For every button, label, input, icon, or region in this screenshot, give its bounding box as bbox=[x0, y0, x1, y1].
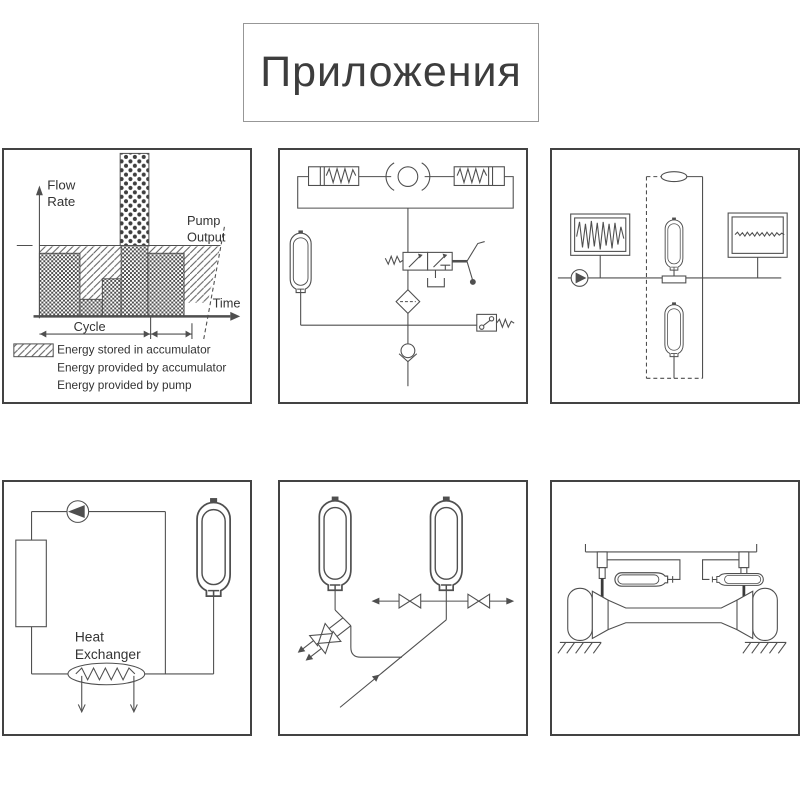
oscilloscope-noisy bbox=[571, 214, 630, 278]
valve-spring bbox=[385, 256, 403, 264]
accumulator-bank-svg bbox=[280, 482, 526, 734]
spring-cylinder-right-icon bbox=[454, 167, 504, 186]
circulation-pump-icon bbox=[67, 501, 89, 523]
panel-pulsation-damping bbox=[550, 148, 800, 404]
vehicle-frame bbox=[585, 544, 756, 552]
spring-cylinder-left-icon bbox=[309, 167, 359, 186]
horizontal-accumulator-right bbox=[712, 574, 763, 586]
distribution-line bbox=[372, 594, 515, 608]
panel-brake-circuit bbox=[278, 148, 528, 404]
time-axis-arrow bbox=[230, 312, 240, 321]
oscilloscope-smooth bbox=[728, 213, 787, 278]
legend-item-3: Energy provided by pump bbox=[57, 378, 192, 392]
axle-beam bbox=[608, 600, 737, 630]
supply-line bbox=[340, 620, 446, 708]
wheel-left bbox=[568, 588, 593, 640]
shutoff-valve-icon bbox=[468, 594, 490, 608]
pump-icon bbox=[571, 270, 588, 287]
hub-left bbox=[592, 591, 608, 638]
heat-exchanger-label-line1: Heat bbox=[75, 629, 104, 644]
directional-valve-icon bbox=[385, 242, 484, 285]
accumulator-branch-icon bbox=[665, 302, 683, 378]
wheel-right bbox=[753, 588, 778, 640]
time-label: Time bbox=[213, 295, 241, 310]
flow-arrow-branch1 bbox=[298, 646, 306, 653]
tank-icon bbox=[428, 270, 445, 287]
page: Приложения bbox=[0, 0, 800, 800]
branch-lines bbox=[298, 610, 402, 661]
panel-energy-chart: Flow Rate Pump Output Time Cycle Energy … bbox=[2, 148, 252, 404]
panel-thermal-circuit: Heat Exchanger bbox=[2, 480, 252, 736]
accumulator-icon bbox=[290, 230, 311, 325]
panel-accumulator-bank bbox=[278, 480, 528, 736]
suspension-svg bbox=[552, 482, 798, 734]
check-valve-icon bbox=[399, 325, 417, 386]
filter-icon bbox=[396, 270, 420, 325]
hub-right bbox=[737, 591, 753, 638]
legend-item-1: Energy stored in accumulator bbox=[57, 343, 211, 357]
title-box: Приложения bbox=[243, 23, 539, 122]
flow-arrow-left bbox=[372, 598, 380, 605]
accumulator-left-icon bbox=[319, 497, 351, 610]
heater-column-icon bbox=[16, 540, 47, 627]
inline-damper-icon bbox=[661, 172, 687, 182]
pressure-switch-icon bbox=[477, 314, 514, 331]
thermal-circuit-svg: Heat Exchanger bbox=[4, 482, 250, 734]
pump-output-label-line2: Output bbox=[187, 230, 226, 245]
ground-hatch bbox=[558, 642, 786, 653]
y-axis-label-line2: Rate bbox=[47, 194, 75, 209]
flow-arrow-branch2 bbox=[306, 654, 314, 661]
chart-legend: Energy stored in accumulator Energy prov… bbox=[14, 343, 227, 392]
heat-exchanger-icon bbox=[68, 663, 145, 712]
panel-suspension bbox=[550, 480, 800, 736]
brake-circuit-svg bbox=[280, 150, 526, 402]
y-axis-arrow bbox=[36, 185, 43, 195]
accumulator-icon bbox=[197, 498, 230, 674]
flow-arrow-right bbox=[506, 598, 514, 605]
heat-exchanger-label-line2: Exchanger bbox=[75, 647, 141, 662]
accumulator-on-line-icon bbox=[662, 218, 686, 283]
horizontal-accumulator-left bbox=[615, 573, 673, 586]
page-title: Приложения bbox=[260, 48, 522, 97]
shutoff-valve-icon bbox=[399, 594, 421, 608]
wheel-drum-icon bbox=[386, 163, 430, 191]
suspension-strut-left bbox=[597, 552, 607, 600]
pulsation-damping-svg bbox=[552, 150, 798, 402]
energy-chart-svg: Flow Rate Pump Output Time Cycle Energy … bbox=[4, 150, 250, 402]
cycle-label: Cycle bbox=[74, 319, 106, 334]
pump-output-label-line1: Pump bbox=[187, 213, 220, 228]
legend-item-2: Energy provided by accumulator bbox=[57, 360, 226, 374]
y-axis-label-line1: Flow bbox=[47, 177, 75, 192]
legend-hatch-swatch bbox=[14, 344, 53, 357]
lever-pivot bbox=[470, 279, 476, 285]
